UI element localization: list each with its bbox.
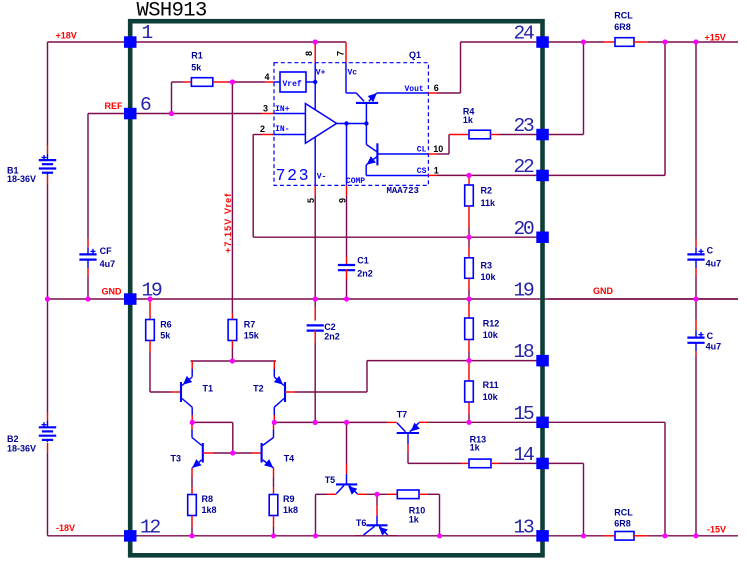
svg-text:4u7: 4u7	[706, 341, 722, 351]
svg-text:RCL: RCL	[614, 11, 633, 21]
svg-text:6: 6	[434, 83, 439, 93]
svg-text:8: 8	[304, 51, 314, 56]
svg-text:T1: T1	[203, 383, 214, 393]
svg-text:6R8: 6R8	[614, 22, 631, 32]
svg-text:R11: R11	[483, 380, 499, 390]
svg-text:10: 10	[433, 144, 443, 154]
svg-text:C: C	[707, 331, 714, 341]
svg-text:6: 6	[140, 94, 151, 116]
svg-text:+7.15V Vref: +7.15V Vref	[223, 193, 233, 253]
svg-text:RCL: RCL	[614, 508, 633, 518]
svg-text:3: 3	[263, 104, 268, 114]
svg-text:C2: C2	[324, 322, 336, 332]
svg-text:IN+: IN+	[275, 105, 290, 114]
svg-text:11k: 11k	[481, 198, 497, 208]
svg-text:CL: CL	[417, 146, 427, 155]
svg-text:1k8: 1k8	[202, 505, 217, 515]
svg-text:23: 23	[513, 115, 534, 137]
svg-text:5k: 5k	[160, 331, 171, 341]
svg-text:1k: 1k	[409, 515, 420, 525]
svg-text:Q1: Q1	[409, 50, 421, 60]
svg-text:T7: T7	[397, 409, 408, 419]
svg-text:6R8: 6R8	[614, 519, 631, 529]
svg-text:4: 4	[264, 72, 269, 82]
svg-text:20: 20	[513, 218, 534, 240]
svg-text:Vref: Vref	[283, 80, 302, 89]
svg-text:2: 2	[260, 124, 265, 134]
svg-text:R8: R8	[202, 494, 214, 504]
svg-text:12: 12	[140, 517, 161, 539]
svg-text:R12: R12	[483, 319, 500, 329]
svg-text:5: 5	[306, 198, 316, 203]
svg-text:COMP: COMP	[346, 177, 365, 186]
svg-text:2n2: 2n2	[357, 268, 373, 278]
svg-text:723: 723	[276, 166, 311, 185]
svg-text:9: 9	[337, 198, 347, 203]
svg-text:18: 18	[513, 341, 534, 363]
svg-text:R3: R3	[481, 261, 493, 271]
svg-text:V-: V-	[317, 173, 327, 182]
svg-text:19: 19	[513, 280, 534, 302]
svg-text:R9: R9	[283, 494, 295, 504]
svg-text:R2: R2	[481, 186, 493, 196]
svg-text:13: 13	[513, 516, 534, 538]
svg-text:Vc: Vc	[348, 68, 358, 77]
svg-text:GND: GND	[102, 287, 123, 297]
svg-text:V+: V+	[316, 68, 326, 77]
svg-text:7: 7	[335, 51, 345, 56]
svg-text:24: 24	[513, 23, 534, 45]
svg-text:T6: T6	[356, 518, 367, 528]
svg-text:15: 15	[513, 403, 534, 425]
svg-text:1k8: 1k8	[283, 505, 298, 515]
svg-text:10k: 10k	[481, 272, 497, 282]
svg-text:B2: B2	[7, 434, 19, 444]
svg-text:1: 1	[142, 22, 153, 44]
svg-text:REF: REF	[105, 101, 124, 111]
svg-text:-18V: -18V	[56, 523, 75, 533]
svg-text:10k: 10k	[483, 392, 499, 402]
svg-text:GND: GND	[593, 286, 614, 296]
svg-text:C: C	[707, 246, 714, 256]
svg-text:+18V: +18V	[56, 30, 77, 40]
svg-text:4u7: 4u7	[706, 258, 722, 268]
svg-text:18-36V: 18-36V	[7, 444, 36, 454]
svg-text:T4: T4	[284, 454, 295, 464]
svg-text:R7: R7	[244, 319, 256, 329]
svg-text:R6: R6	[160, 319, 172, 329]
svg-text:18-36V: 18-36V	[7, 174, 36, 184]
svg-text:R1: R1	[191, 51, 203, 61]
svg-text:CS: CS	[417, 167, 427, 176]
svg-text:WSH913: WSH913	[137, 0, 207, 22]
svg-text:Vout: Vout	[405, 85, 424, 94]
svg-text:19: 19	[142, 280, 163, 302]
svg-text:14: 14	[513, 444, 534, 466]
svg-text:IN-: IN-	[275, 125, 289, 134]
svg-text:T2: T2	[253, 383, 264, 393]
svg-text:15k: 15k	[244, 331, 260, 341]
svg-text:CF: CF	[100, 246, 112, 256]
svg-text:1k: 1k	[470, 442, 481, 452]
svg-text:+15V: +15V	[705, 32, 726, 42]
svg-text:1: 1	[434, 166, 439, 176]
svg-text:10k: 10k	[483, 330, 499, 340]
svg-text:T3: T3	[171, 454, 182, 464]
svg-text:1k: 1k	[463, 115, 474, 125]
svg-text:C1: C1	[357, 256, 369, 266]
svg-text:5k: 5k	[191, 62, 202, 72]
svg-text:4u7: 4u7	[100, 259, 116, 269]
svg-text:2n2: 2n2	[324, 332, 340, 342]
svg-text:-15V: -15V	[707, 525, 726, 535]
svg-text:22: 22	[513, 156, 534, 178]
svg-text:T5: T5	[325, 475, 336, 485]
svg-text:MAA723: MAA723	[387, 186, 419, 196]
